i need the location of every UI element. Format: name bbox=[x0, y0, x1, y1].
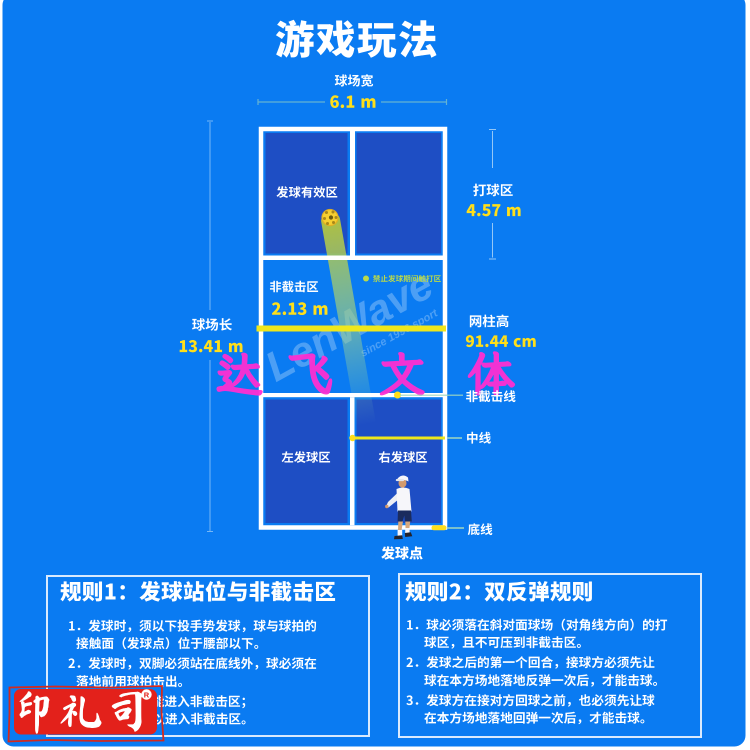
svg-text:R: R bbox=[144, 691, 150, 700]
